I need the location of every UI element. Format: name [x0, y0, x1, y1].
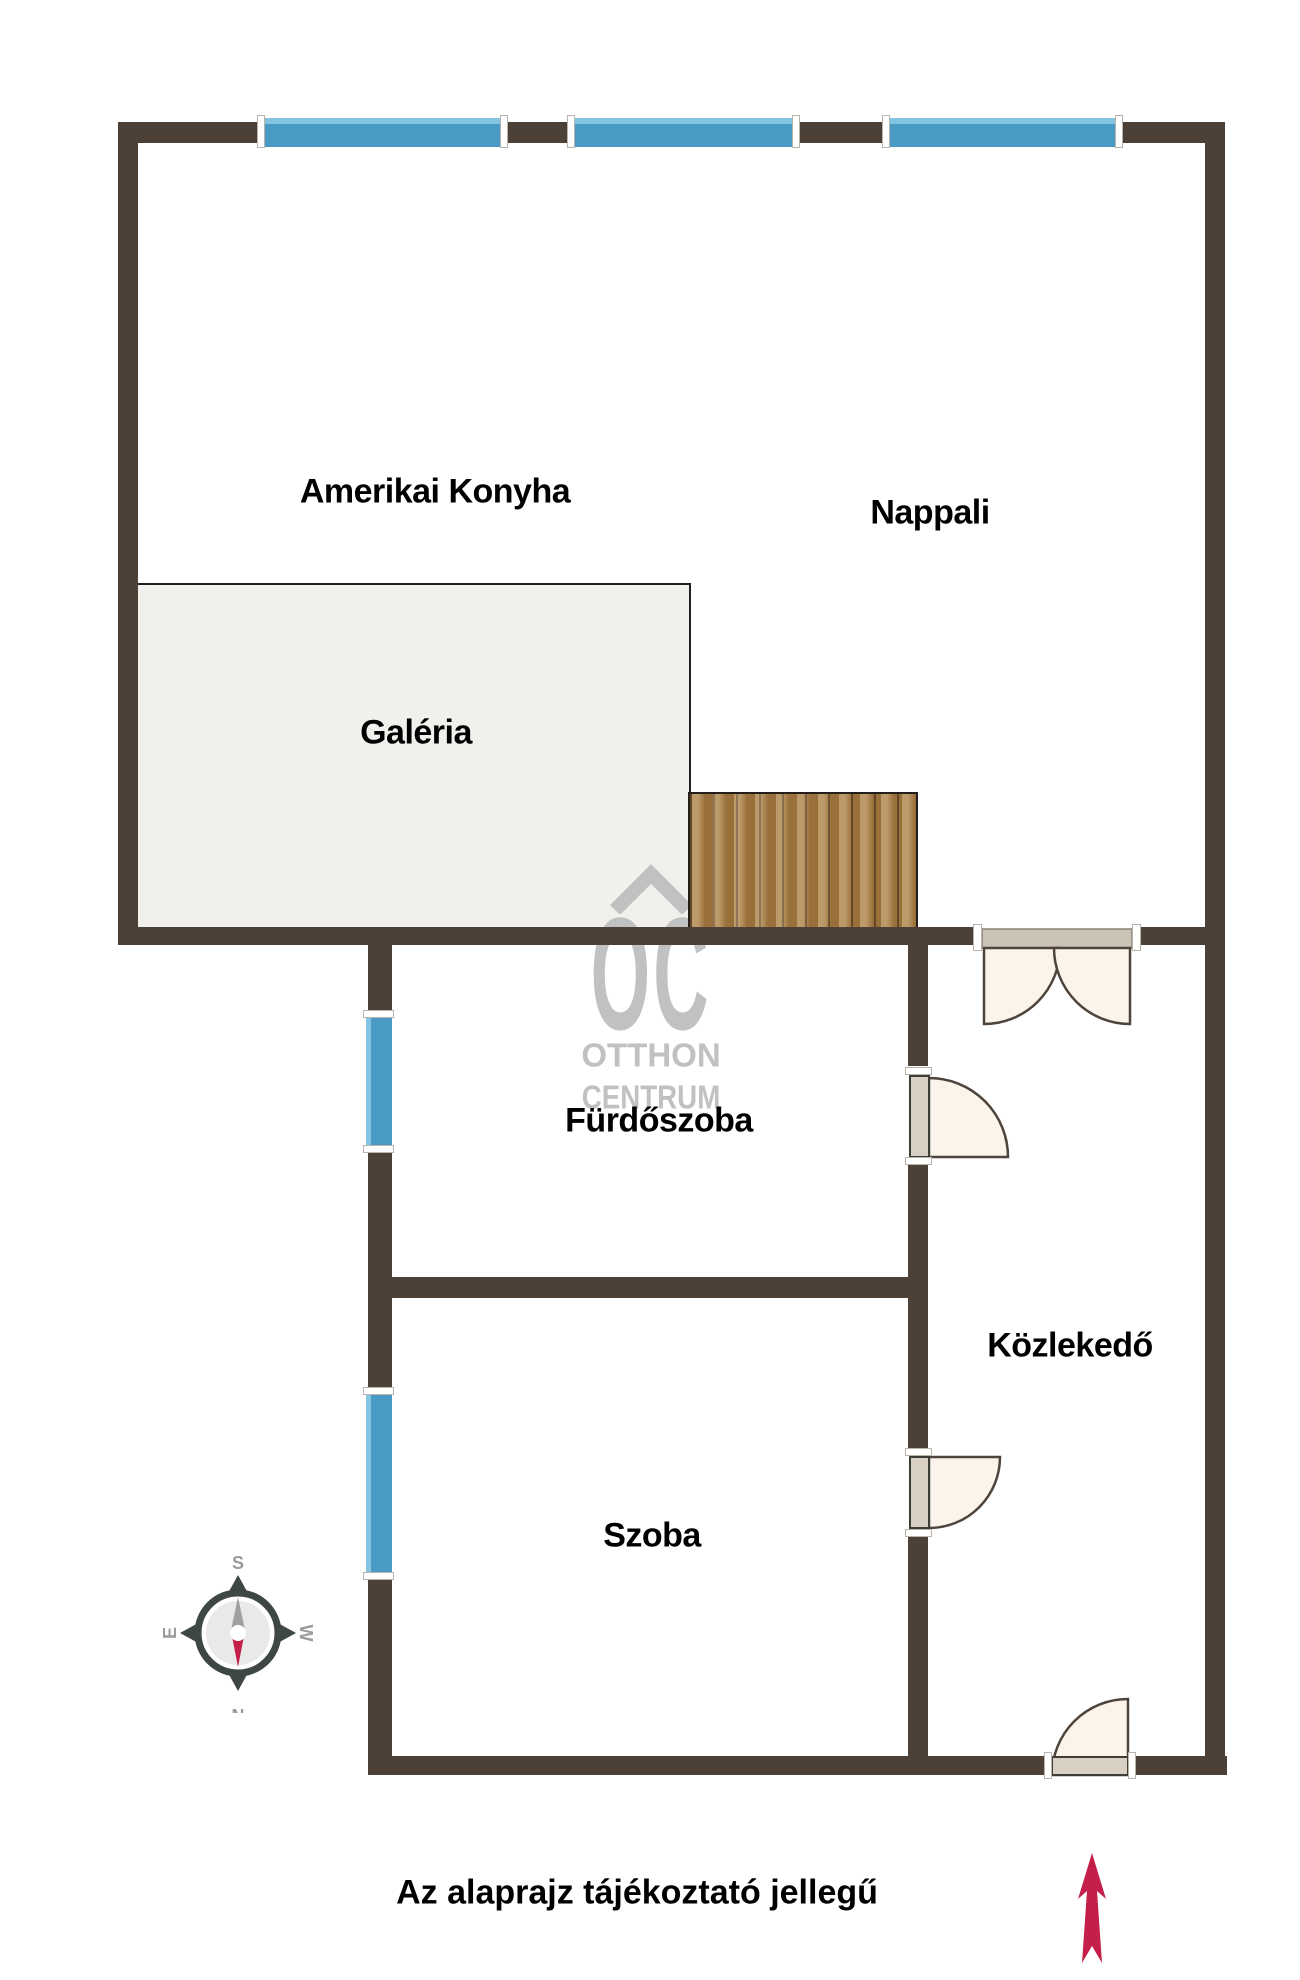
window-cap [1115, 115, 1123, 148]
watermark-line1: OTTHON [581, 1039, 720, 1072]
compass-rose-icon: S N E W [158, 1553, 318, 1713]
door-cap [905, 1067, 932, 1075]
window-cap [500, 115, 508, 148]
wall-bottom-b [1136, 1756, 1227, 1775]
door-cap [1132, 924, 1141, 951]
wall-left [118, 122, 138, 945]
door-cap [905, 1529, 932, 1537]
wall-divider-horizontal [392, 1277, 908, 1298]
window-top-3 [890, 118, 1115, 147]
window-cap [363, 1572, 394, 1580]
window-cap [257, 115, 265, 148]
wall-top-1 [118, 122, 257, 143]
room-label-galeria: Galéria [360, 714, 472, 753]
door-cap [1128, 1752, 1136, 1779]
window-cap [882, 115, 890, 148]
wall-divider-vertical-c [908, 1537, 928, 1756]
door-cap [973, 924, 982, 951]
wall-mainroom-bottom [118, 927, 982, 945]
bathroom-door-leaf [910, 1076, 929, 1157]
wall-block-left-a [368, 945, 392, 1011]
window-cap [567, 115, 575, 148]
door-cap [905, 1157, 932, 1165]
door-cap [1044, 1752, 1052, 1779]
compass-label-s: S [232, 1553, 244, 1573]
footer-disclaimer: Az alaprajz tájékoztató jellegű [396, 1874, 878, 1913]
szoba-door-leaf [910, 1457, 929, 1528]
room-label-nappali: Nappali [870, 494, 989, 533]
window-cap [363, 1387, 394, 1395]
double-door-right-swing-icon [1054, 948, 1130, 1024]
room-label-szoba: Szoba [603, 1517, 701, 1556]
wall-bottom-a [368, 1756, 1044, 1775]
compass-label-n: N [232, 1705, 245, 1713]
szoba-door-swing-icon [929, 1457, 1000, 1528]
wall-divider-vertical-b [908, 1164, 928, 1448]
wall-right [1205, 122, 1225, 1775]
wall-divider-vertical-a [908, 945, 928, 1066]
double-door-left-swing-icon [984, 948, 1060, 1024]
window-top-2 [575, 118, 792, 147]
north-arrow-icon [1076, 1853, 1108, 1965]
window-cap [363, 1010, 394, 1018]
room-label-furdoszoba: Fürdőszoba [565, 1102, 753, 1141]
compass-label-w: W [296, 1625, 316, 1642]
wall-block-left-b [368, 1152, 392, 1388]
double-door-header [982, 929, 1132, 948]
window-left-1 [366, 1018, 392, 1145]
floor-plan: OC OTTHON CENTRUM [0, 0, 1300, 1980]
entry-door-swing-icon [1052, 1699, 1128, 1775]
wall-block-left-c [368, 1579, 392, 1756]
bathroom-door-swing-icon [929, 1078, 1008, 1157]
wall-top-3 [800, 122, 882, 143]
window-cap [792, 115, 800, 148]
room-label-amerikai-konyha: Amerikai Konyha [300, 473, 570, 512]
compass-label-e: E [160, 1627, 180, 1639]
window-top-1 [265, 118, 500, 147]
door-cap [905, 1448, 932, 1456]
entry-door-leaf [1052, 1757, 1128, 1775]
window-left-2 [366, 1395, 392, 1572]
stairs [688, 792, 918, 927]
wall-mainroom-bottom-right [1141, 927, 1205, 945]
wall-top-2 [508, 122, 567, 143]
room-label-kozlekedo: Közlekedő [987, 1327, 1153, 1366]
window-cap [363, 1145, 394, 1153]
